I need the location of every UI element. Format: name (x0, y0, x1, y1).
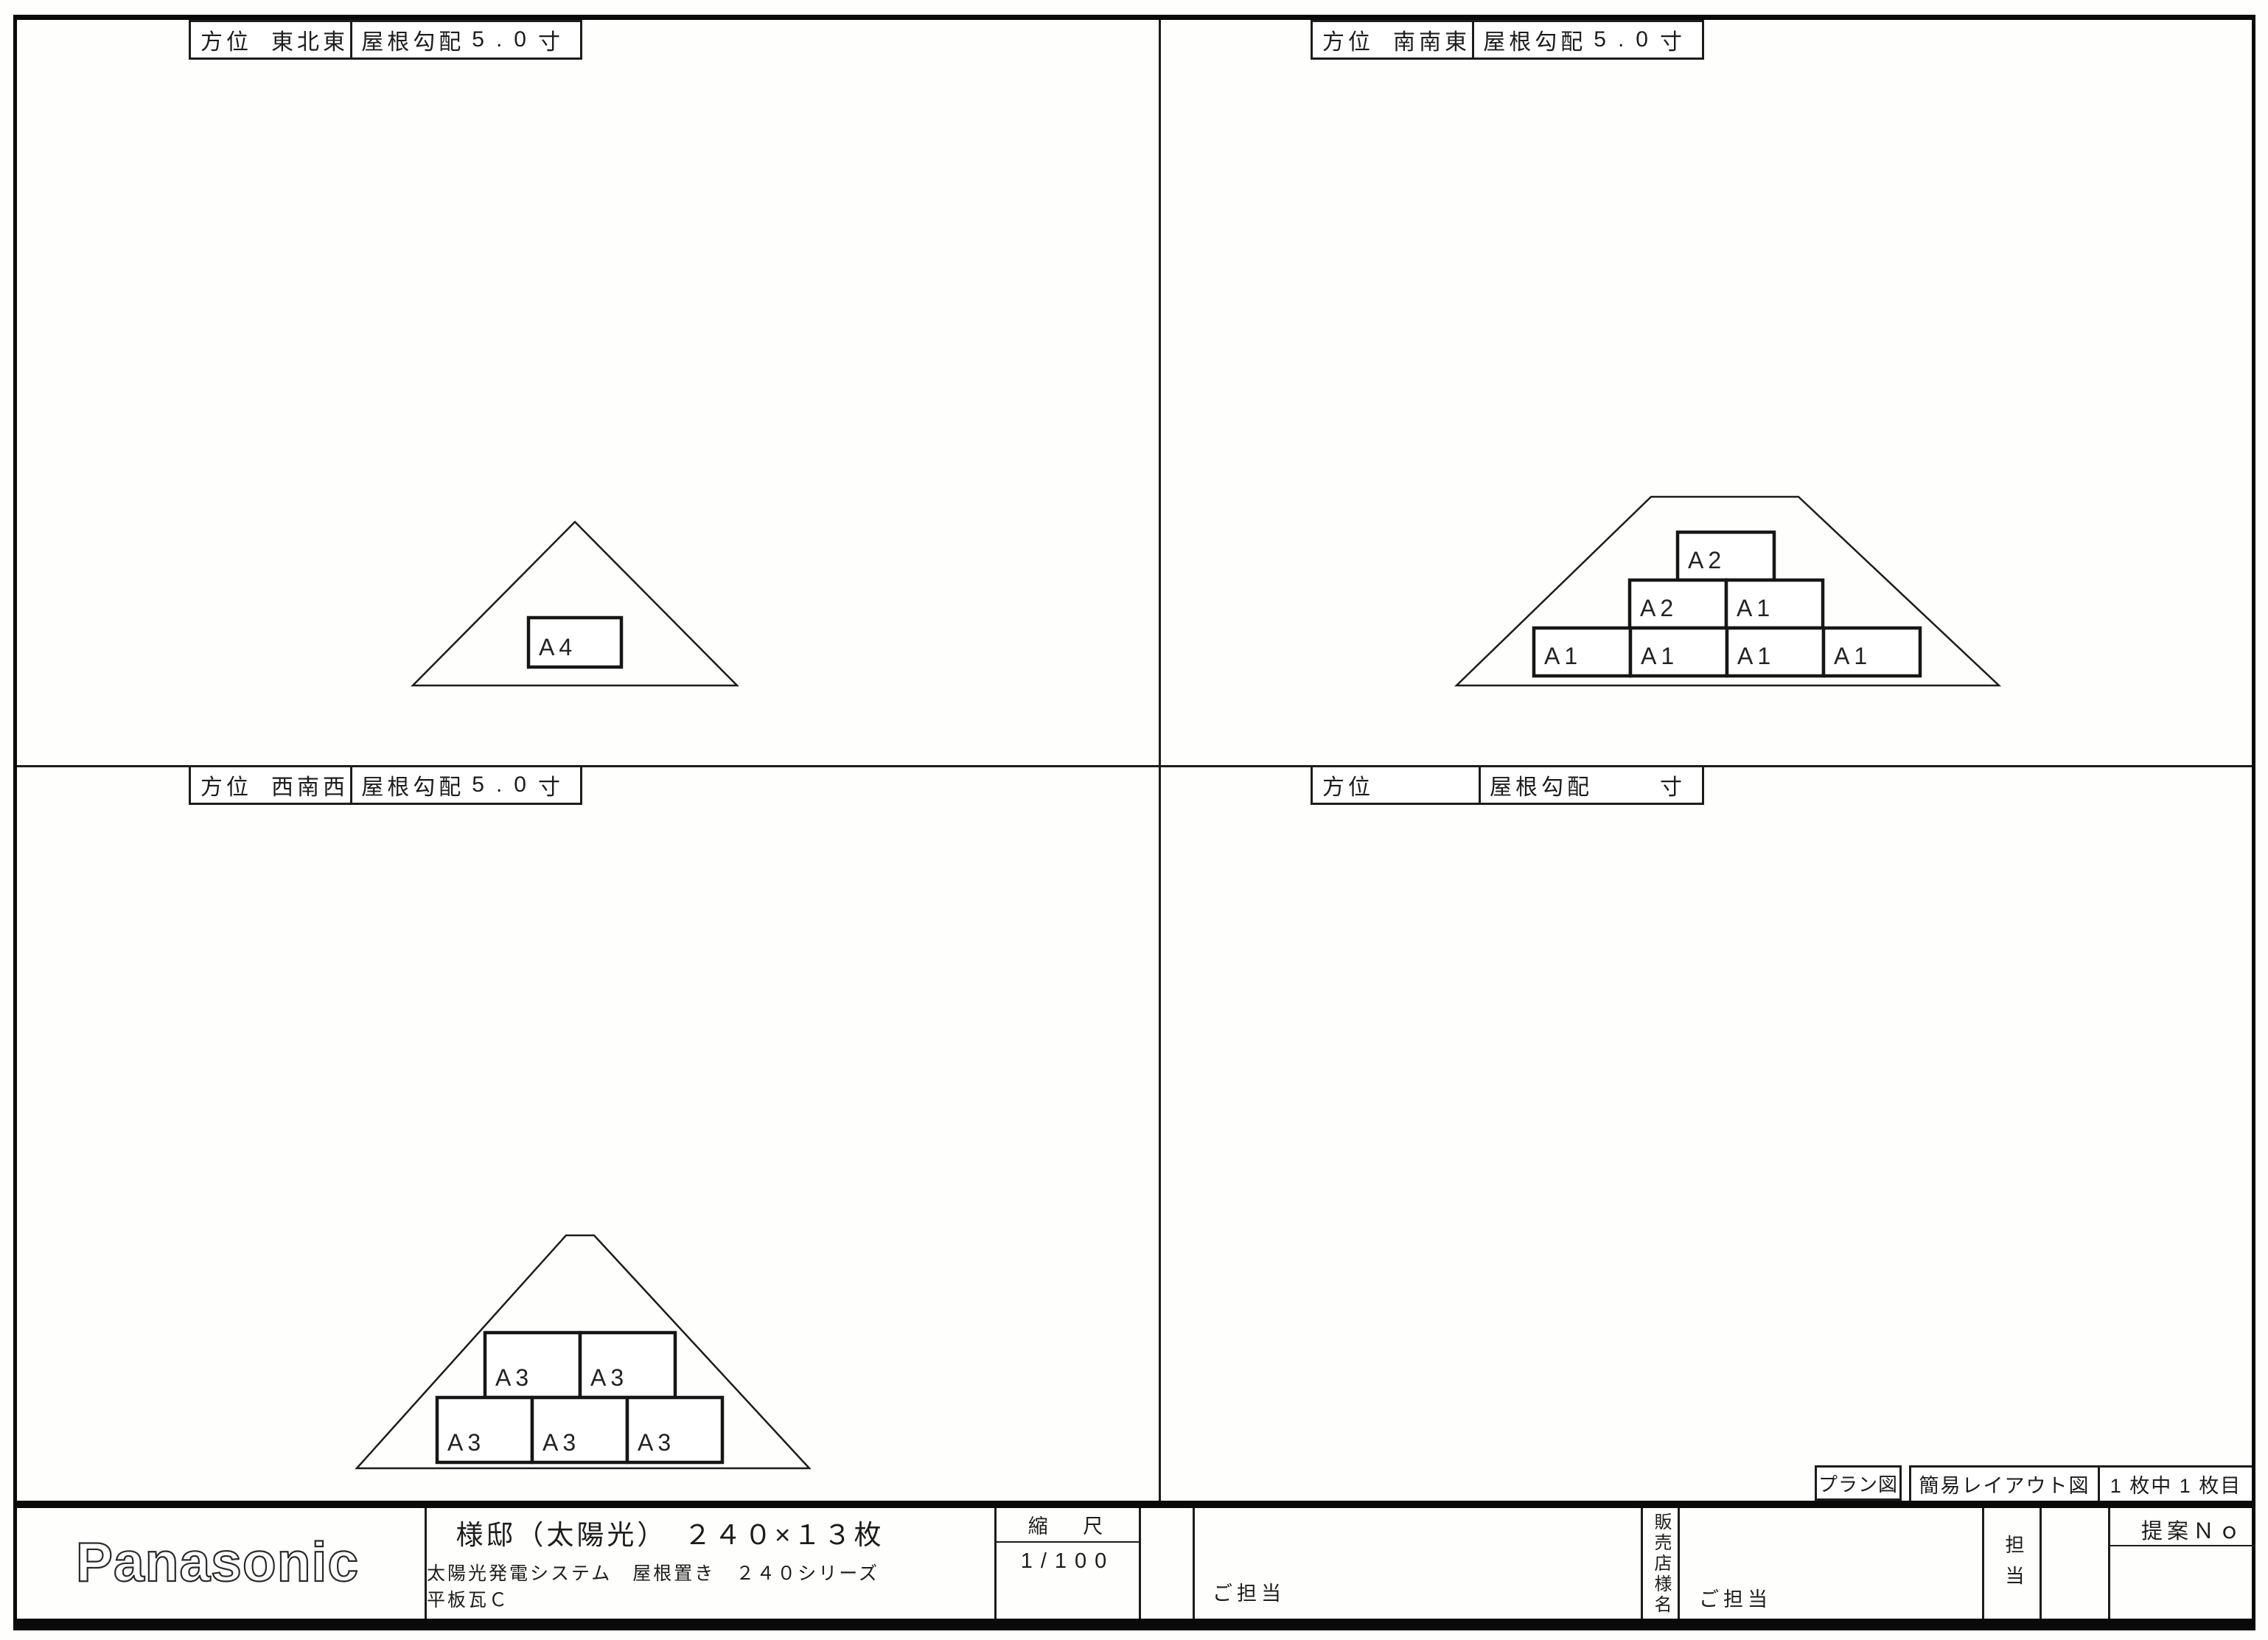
sheet-number-label: 1 枚中 1 枚目 (2110, 1470, 2242, 1498)
panasonic-logo-text: Panasonic (76, 1532, 359, 1593)
solar-panel-label: A2 (1688, 547, 1726, 573)
direction-cell: 方位 南南東 (1313, 22, 1474, 57)
pitch-cell: 屋根勾配 5.0 寸 (352, 767, 580, 803)
direction-label: 方位 (1322, 24, 1374, 56)
pitch-unit: 寸 (538, 769, 564, 801)
roof-east-north-east: A4 (413, 522, 737, 685)
project-title-cell: 様邸（太陽光） ２４０×１３枚 太陽光発電システム 屋根置き ２４０シリーズ 平… (427, 1508, 994, 1619)
pitch-cell: 屋根勾配 5.0 寸 (352, 22, 580, 57)
pitch-label: 屋根勾配 (1490, 769, 1593, 801)
pitch-cell: 屋根勾配 寸 (1481, 767, 1702, 803)
roof-diagrams: A4A2A2A1A1A1A1A1A3A3A3A3A3 (0, 0, 2268, 1640)
pitch-unit: 寸 (538, 24, 564, 56)
direction-cell: 方位 (1313, 767, 1481, 803)
scale-cell: 縮 尺 1/100 (997, 1508, 1139, 1619)
solar-panel-label: A1 (1544, 643, 1582, 669)
direction-label: 方位 (200, 24, 252, 56)
drawing-type-cell: 簡易レイアウト図 (1909, 1465, 2098, 1501)
title-block-divider (1139, 1508, 1141, 1619)
contact-label-2: ご担当 (1699, 1583, 1772, 1612)
pitch-unit: 寸 (1660, 24, 1686, 56)
pitch-value: 5.0 (472, 27, 538, 52)
title-block-divider (1982, 1508, 1984, 1619)
direction-cell: 方位 東北東 (191, 22, 352, 57)
pitch-label: 屋根勾配 (361, 769, 464, 801)
title-block-divider (2040, 1508, 2042, 1619)
pitch-unit: 寸 (1660, 769, 1686, 801)
direction-value: 東北東 (271, 24, 349, 56)
project-subtitle: 太陽光発電システム 屋根置き ２４０シリーズ 平板瓦Ｃ (427, 1559, 913, 1612)
solar-panel-label: A1 (1641, 643, 1678, 669)
project-title: 様邸（太陽光） ２４０×１３枚 (456, 1512, 884, 1552)
roof-west-south-west: A3A3A3A3A3 (357, 1235, 809, 1468)
scale-label: 縮 尺 (997, 1508, 1139, 1543)
direction-label: 方位 (1322, 769, 1374, 801)
title-block-divider (1678, 1508, 1680, 1619)
pitch-value: 5.0 (472, 772, 538, 798)
layout-drawing-sheet: A4A2A2A1A1A1A1A1A3A3A3A3A3 方位 東北東 屋根勾配 5… (0, 0, 2268, 1640)
solar-panel-label: A3 (495, 1364, 533, 1391)
drawing-type-label: 簡易レイアウト図 (1919, 1470, 2090, 1498)
pitch-value: 5.0 (1594, 27, 1660, 52)
header-quadrant-bottom-right: 方位 屋根勾配 寸 (1311, 765, 1704, 805)
panasonic-logo: Panasonic (44, 1532, 391, 1599)
plan-type-box: プラン図 (1815, 1465, 1902, 1501)
pitch-label: 屋根勾配 (1483, 24, 1586, 56)
proposal-number-label: 提案Ｎｏ (2141, 1514, 2244, 1545)
dealer-name-label: 販売店様名 (1648, 1512, 1674, 1616)
solar-panel-label: A2 (1640, 595, 1678, 621)
plan-type-label: プラン図 (1818, 1470, 1898, 1497)
staff-label: 担当 (2000, 1535, 2028, 1597)
roof-south-south-east: A2A2A1A1A1A1A1 (1456, 497, 1999, 685)
proposal-number-line (2108, 1545, 2255, 1546)
title-block-divider (1641, 1508, 1643, 1619)
solar-panel-label: A3 (638, 1429, 675, 1456)
direction-value: 南南東 (1393, 24, 1470, 56)
pitch-cell: 屋根勾配 5.0 寸 (1474, 22, 1702, 57)
header-quadrant-top-right: 方位 南南東 屋根勾配 5.0 寸 (1311, 20, 1704, 60)
direction-cell: 方位 西南西 (191, 767, 352, 803)
solar-panel-label: A1 (1737, 595, 1774, 621)
direction-label: 方位 (200, 769, 252, 801)
contact-label-1: ご担当 (1212, 1577, 1285, 1606)
title-block-divider (1193, 1508, 1195, 1619)
solar-panel-label: A4 (539, 634, 576, 660)
pitch-label: 屋根勾配 (361, 24, 464, 56)
sheet-number-cell: 1 枚中 1 枚目 (2098, 1465, 2252, 1501)
title-block-divider (2108, 1508, 2110, 1619)
direction-value: 西南西 (271, 769, 349, 801)
solar-panel-label: A1 (1737, 643, 1775, 669)
solar-panel-label: A3 (447, 1429, 485, 1456)
solar-panel-label: A3 (542, 1429, 580, 1456)
header-quadrant-bottom-left: 方位 西南西 屋根勾配 5.0 寸 (189, 765, 582, 805)
scale-value: 1/100 (997, 1549, 1139, 1574)
solar-panel-label: A3 (590, 1364, 628, 1391)
header-quadrant-top-left: 方位 東北東 屋根勾配 5.0 寸 (189, 20, 582, 60)
solar-panel-label: A1 (1834, 643, 1871, 669)
